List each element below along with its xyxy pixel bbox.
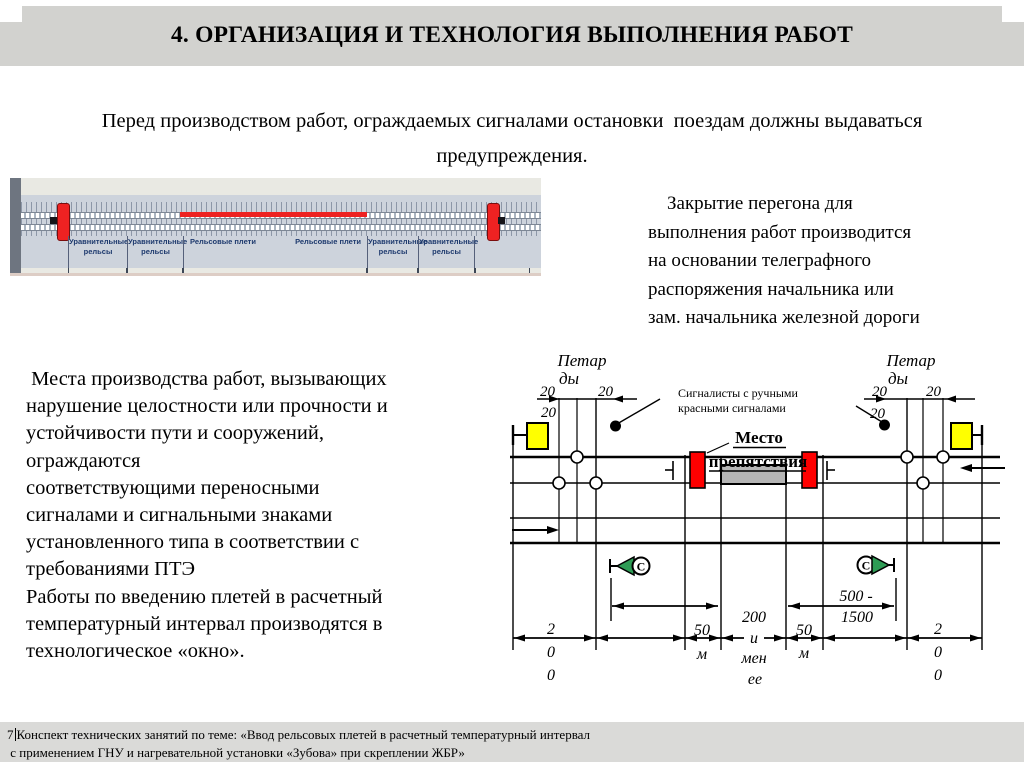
dim-200-less: и — [750, 630, 758, 647]
rail-section-label: Рельсовые плети — [190, 237, 256, 268]
dim-200-char: 2 — [547, 621, 555, 638]
bottom-dimension-labels: 2 0 0 50 м 200 и мен ее 50 м 2 0 0 — [547, 609, 942, 688]
signalmen-label: Сигналисты с ручными — [678, 386, 799, 400]
yellow-signal-right — [951, 423, 982, 449]
dim-50-label: 50 — [694, 622, 710, 639]
rail-section-label: Уравнительные рельсы — [127, 236, 183, 268]
arrowhead-left — [946, 396, 956, 403]
bottom-dimension-arrowheads — [514, 635, 981, 642]
whistle-sign-cone — [617, 557, 634, 575]
dist-20-label: 20 — [541, 405, 557, 421]
obstruction-label2: препятствия — [709, 452, 807, 471]
arrowhead-left — [613, 396, 623, 403]
photo-top-band — [21, 178, 541, 195]
dim-200-char: 0 — [934, 667, 942, 684]
signalman-dot-right — [879, 420, 890, 431]
whistle-sign-cone — [872, 556, 889, 574]
rail-bottom — [21, 224, 541, 231]
footer: 7Конспект технических занятий по теме: «… — [7, 726, 1017, 761]
fencing-note-paragraph: Места производства работ, вызывающих нар… — [26, 366, 496, 665]
signalman-dot-left — [610, 421, 621, 432]
page-number: 7 — [7, 727, 14, 742]
slide-corner-notch-right — [1002, 0, 1024, 22]
slide-title: 4. ОРГАНИЗАЦИЯ И ТЕХНОЛОГИЯ ВЫПОЛНЕНИЯ Р… — [0, 22, 1024, 49]
petards-label-left2: ды — [559, 369, 579, 388]
petard-icon — [917, 477, 929, 489]
footer-title: Конспект технических занятий по теме: «В… — [17, 727, 591, 742]
heated-rail-segment — [180, 212, 367, 217]
meters-unit: м — [696, 646, 707, 663]
rail-section-label: Уравнительные рельсы — [367, 236, 418, 268]
dim-50-label: 50 — [796, 622, 812, 639]
rail-section-label: Уравнительные рельсы — [418, 236, 475, 268]
photo-signal-post-left — [50, 217, 57, 224]
upper-dimension-left — [612, 603, 718, 610]
petards-label-left: Петар — [556, 351, 606, 370]
photo-signal-post-right — [498, 217, 505, 224]
petard-icon — [571, 451, 583, 463]
closure-note-paragraph: Закрытие перегона для выполнения работ п… — [648, 190, 978, 333]
dim-200-char: 2 — [934, 621, 942, 638]
dim-200-less: мен — [740, 650, 766, 667]
petard-spacing-dimension-right: 20 20 20 — [864, 384, 975, 422]
whistle-letter: С — [862, 559, 871, 573]
petard-icon — [590, 477, 602, 489]
rail-track-image: Уравнительные рельсы Уравнительные рельс… — [10, 178, 541, 276]
direction-arrow-right — [547, 526, 559, 534]
whistle-letter: С — [637, 560, 646, 574]
petard-icon — [937, 451, 949, 463]
yellow-signal-icon — [951, 423, 972, 449]
signalmen: Сигналисты с ручными красными сигналами — [610, 386, 890, 432]
yellow-signal-icon — [527, 423, 548, 449]
upper-dimension-500-1500: 500 - 1500 — [788, 588, 894, 626]
rail-section-label: Уравнительные рельсы — [68, 236, 127, 268]
dim-500-1500-label2: 1500 — [841, 609, 873, 626]
footer-line2: с применением ГНУ и нагревательной устан… — [7, 744, 1017, 762]
yellow-signal-left — [513, 423, 548, 449]
obstruction-label: Место — [735, 428, 783, 447]
red-signal-icon-left — [690, 452, 705, 488]
petard-spacing-dimension-left: 20 20 20 — [537, 384, 637, 421]
dist-20-label: 20 — [926, 384, 942, 400]
whistle-sign-left: С — [610, 557, 650, 621]
petards-label-right2: ды — [888, 369, 908, 388]
petard-icon — [553, 477, 565, 489]
signalman-leader-line — [617, 399, 660, 424]
dim-200-char: 0 — [547, 667, 555, 684]
dist-20-label: 20 — [598, 384, 614, 400]
slide-corner-notch-left — [0, 0, 22, 22]
obstruction-area: Место препятствия — [665, 428, 835, 488]
dim-200-less: ее — [748, 671, 762, 688]
dim-200-char: 0 — [547, 644, 555, 661]
direction-arrow-left — [960, 464, 972, 472]
intro-paragraph: Перед производством работ, ограждаемых с… — [20, 104, 1004, 174]
dist-20-label: 20 — [540, 384, 556, 400]
dist-20-label: 20 — [872, 384, 888, 400]
rail-section-label: Рельсовые плети — [295, 237, 361, 268]
signalmen-label2: красными сигналами — [678, 401, 786, 415]
footer-line1: 7Конспект технических занятий по теме: «… — [7, 726, 1017, 744]
meters-unit: м — [798, 645, 809, 662]
dim-500-1500-label: 500 - — [839, 588, 872, 605]
petards-label-right: Петар — [885, 351, 935, 370]
footer-divider — [15, 728, 16, 741]
rail-section-label-wide: Рельсовые плети Рельсовые плети — [183, 236, 367, 268]
fencing-scheme-diagram: 20 20 20 20 20 20 Петар ды Петар ды Сигн… — [480, 340, 1024, 708]
photo-bottom-strip — [10, 273, 541, 276]
dim-200-char: 0 — [934, 644, 942, 661]
petard-icon — [901, 451, 913, 463]
photo-left-edge — [10, 178, 21, 276]
dim-200-less: 200 — [742, 609, 766, 626]
